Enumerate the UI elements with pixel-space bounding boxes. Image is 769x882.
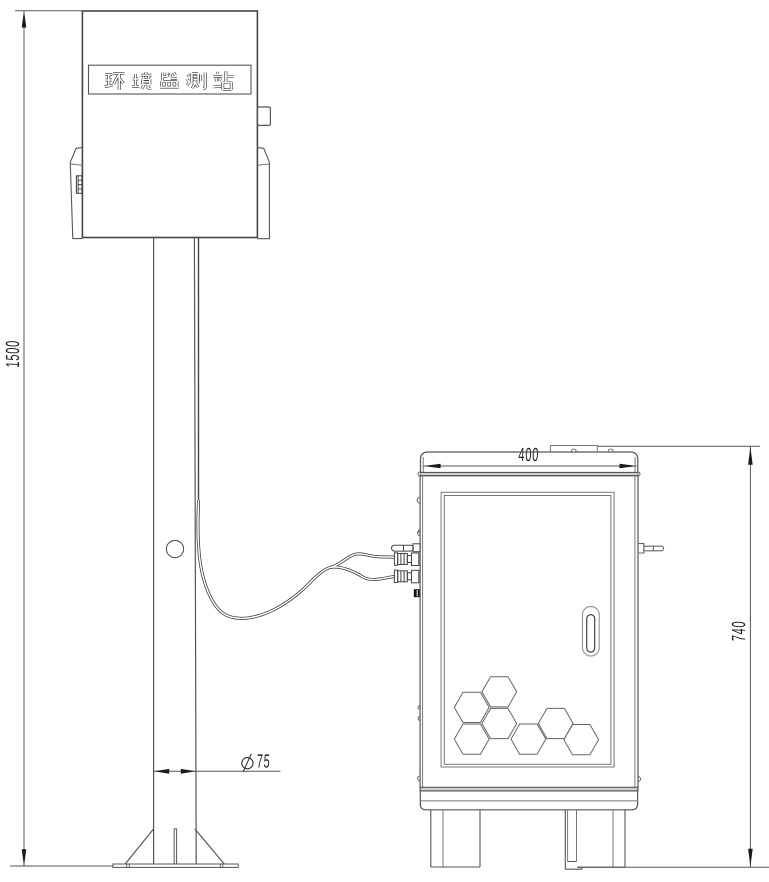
svg-text:1500: 1500: [3, 340, 24, 368]
svg-text:75: 75: [256, 752, 271, 773]
svg-text:740: 740: [729, 620, 750, 641]
svg-text:400: 400: [518, 445, 539, 466]
